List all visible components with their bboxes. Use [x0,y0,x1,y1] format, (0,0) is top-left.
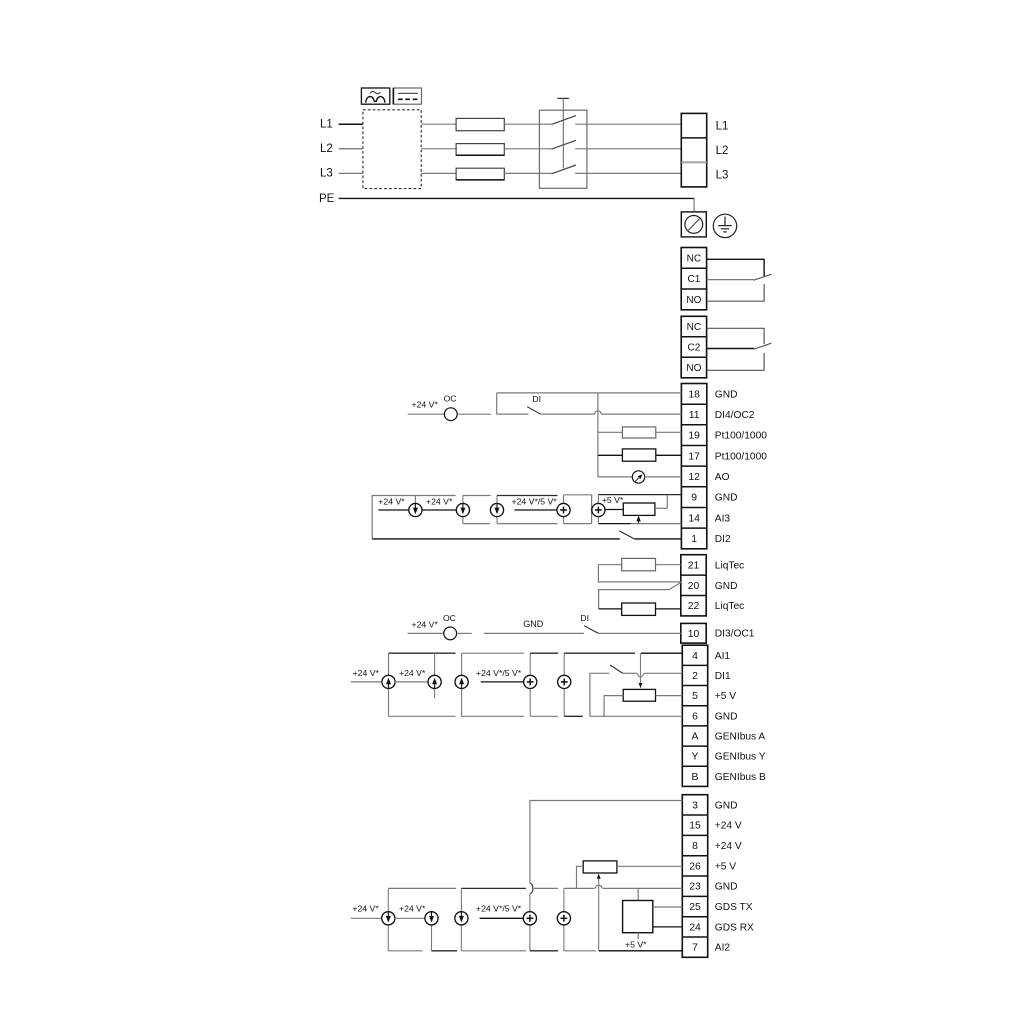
svg-text:26: 26 [689,861,701,872]
svg-text:+24 V*: +24 V* [426,497,453,507]
svg-text:10: 10 [688,629,700,640]
svg-text:24: 24 [689,922,701,933]
svg-text:22: 22 [688,601,700,612]
svg-text:GND: GND [715,800,738,811]
svg-text:L3: L3 [320,168,333,180]
svg-text:+24 V*: +24 V* [353,668,380,678]
svg-text:GENIbus A: GENIbus A [715,731,766,742]
svg-text:4: 4 [692,651,698,662]
svg-text:NC: NC [687,253,701,264]
svg-text:NO: NO [686,295,701,306]
svg-text:+24 V: +24 V [715,841,742,852]
svg-text:18: 18 [688,389,700,400]
svg-text:L2: L2 [320,143,333,155]
svg-text:L1: L1 [716,121,729,133]
svg-text:+24 V*/5 V*: +24 V*/5 V* [476,904,522,914]
svg-text:+5 V: +5 V [715,691,736,702]
svg-text:OC: OC [443,613,456,623]
svg-text:GND: GND [715,389,738,400]
svg-text:23: 23 [689,882,701,893]
svg-text:12: 12 [688,472,700,483]
svg-text:GDS TX: GDS TX [715,902,753,913]
svg-text:LiqTec: LiqTec [715,560,744,571]
svg-text:11: 11 [689,410,700,421]
svg-text:AI1: AI1 [715,651,731,662]
svg-text:25: 25 [689,902,701,913]
svg-text:2: 2 [692,671,698,682]
svg-text:AI2: AI2 [715,943,731,954]
svg-text:19: 19 [688,431,700,442]
svg-text:+24 V: +24 V [715,821,742,832]
svg-text:DI: DI [532,394,541,404]
svg-text:DI3/OC1: DI3/OC1 [715,629,755,640]
svg-text:DI2: DI2 [715,534,731,545]
svg-text:14: 14 [688,513,700,524]
svg-text:GDS RX: GDS RX [715,922,754,933]
svg-text:9: 9 [691,493,697,504]
svg-text:1: 1 [691,534,697,545]
svg-text:DI1: DI1 [715,671,731,682]
svg-text:L2: L2 [716,145,729,157]
svg-text:21: 21 [688,560,700,571]
svg-text:6: 6 [692,711,698,722]
svg-text:+5 V: +5 V [715,861,736,872]
svg-text:AI3: AI3 [715,513,731,524]
svg-text:DI4/OC2: DI4/OC2 [715,410,755,421]
svg-text:15: 15 [689,821,701,832]
svg-text:Pt100/1000: Pt100/1000 [715,451,767,462]
svg-text:17: 17 [688,451,700,462]
svg-text:L3: L3 [716,170,729,182]
svg-text:+24 V*: +24 V* [399,668,426,678]
svg-text:GND: GND [523,619,544,629]
svg-text:+24 V*: +24 V* [378,497,405,507]
svg-text:C1: C1 [688,274,701,285]
svg-text:PE: PE [319,193,335,205]
svg-text:8: 8 [692,841,698,852]
svg-text:OC: OC [444,394,457,404]
svg-text:+24 V*: +24 V* [399,904,426,914]
svg-text:20: 20 [688,581,700,592]
svg-text:+24 V*: +24 V* [412,620,439,630]
svg-text:+24 V*: +24 V* [352,904,379,914]
svg-text:NC: NC [687,322,701,333]
svg-text:GND: GND [715,581,738,592]
svg-text:Y: Y [692,752,699,763]
svg-text:+5 V*: +5 V* [602,495,624,505]
svg-text:GENIbus B: GENIbus B [715,772,766,783]
svg-text:GND: GND [715,882,738,893]
svg-text:B: B [692,772,699,783]
svg-text:GND: GND [715,493,738,504]
svg-text:C2: C2 [688,342,701,353]
svg-text:+24 V*/5 V*: +24 V*/5 V* [512,497,558,507]
svg-text:A: A [692,732,699,743]
svg-text:3: 3 [692,800,698,811]
svg-text:DI: DI [580,613,589,623]
svg-text:NO: NO [686,363,701,374]
svg-text:LiqTec: LiqTec [715,601,744,612]
svg-text:Pt100/1000: Pt100/1000 [715,431,767,442]
svg-text:7: 7 [692,943,698,954]
svg-text:GND: GND [715,711,738,722]
svg-text:AO: AO [715,472,730,483]
svg-text:GENIbus Y: GENIbus Y [715,752,766,763]
svg-text:+24 V*/5 V*: +24 V*/5 V* [476,668,522,678]
svg-text:L1: L1 [320,118,333,130]
svg-text:+5 V*: +5 V* [625,940,647,950]
svg-text:5: 5 [692,691,698,702]
svg-text:+24 V*: +24 V* [412,400,439,410]
